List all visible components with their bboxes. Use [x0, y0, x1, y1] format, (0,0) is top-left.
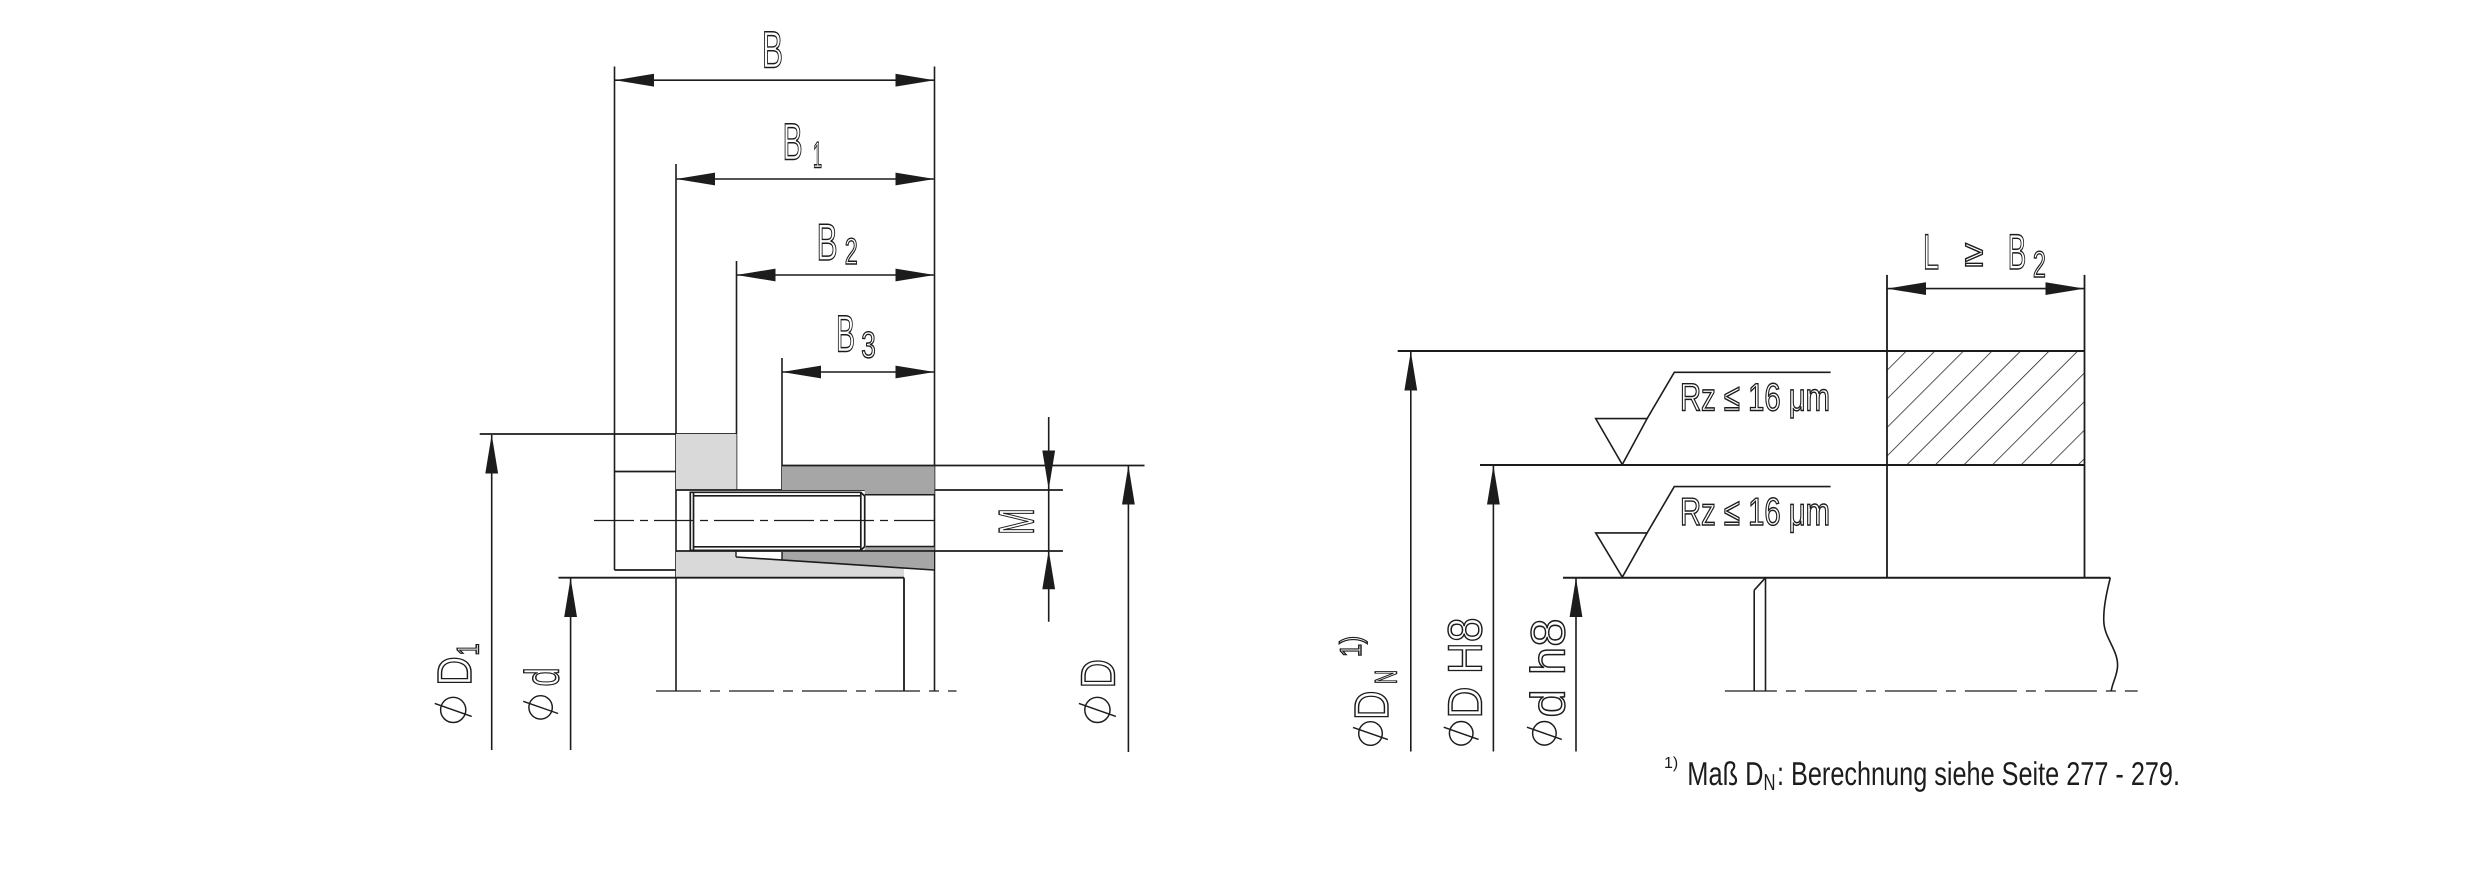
svg-text:1: 1	[813, 135, 822, 176]
svg-text:N: N	[1369, 670, 1404, 684]
svg-text:1): 1)	[1335, 636, 1368, 657]
svg-text:D: D	[1346, 691, 1399, 721]
svg-text:Maß D: Maß D	[1687, 755, 1763, 792]
svg-text:d: d	[517, 668, 570, 687]
svg-text:1: 1	[451, 644, 486, 656]
svg-text:≥: ≥	[1965, 233, 1984, 275]
svg-text:N: N	[1764, 769, 1776, 795]
svg-text:D: D	[429, 656, 482, 686]
svg-text:2: 2	[2033, 244, 2046, 285]
svg-text:D: D	[1073, 659, 1126, 689]
svg-text:: Berechnung siehe Seite 277 -: : Berechnung siehe Seite 277 - 279.	[1777, 755, 2180, 792]
svg-text:3: 3	[861, 325, 876, 366]
svg-text:2: 2	[845, 231, 858, 272]
svg-text:B: B	[762, 22, 783, 80]
svg-text:M: M	[989, 508, 1045, 535]
svg-text:d h8: d h8	[1523, 619, 1576, 718]
svg-text:D H8: D H8	[1440, 618, 1493, 719]
svg-text:B: B	[2008, 224, 2027, 280]
svg-text:B: B	[783, 113, 803, 171]
svg-text:Rz ≤ 16 μm: Rz ≤ 16 μm	[1680, 491, 1830, 534]
svg-text:B: B	[836, 305, 855, 363]
svg-text:1): 1)	[1664, 755, 1678, 772]
svg-text:Rz ≤ 16 μm: Rz ≤ 16 μm	[1680, 377, 1830, 420]
svg-text:B: B	[817, 214, 838, 272]
svg-text:L: L	[1923, 224, 1939, 280]
